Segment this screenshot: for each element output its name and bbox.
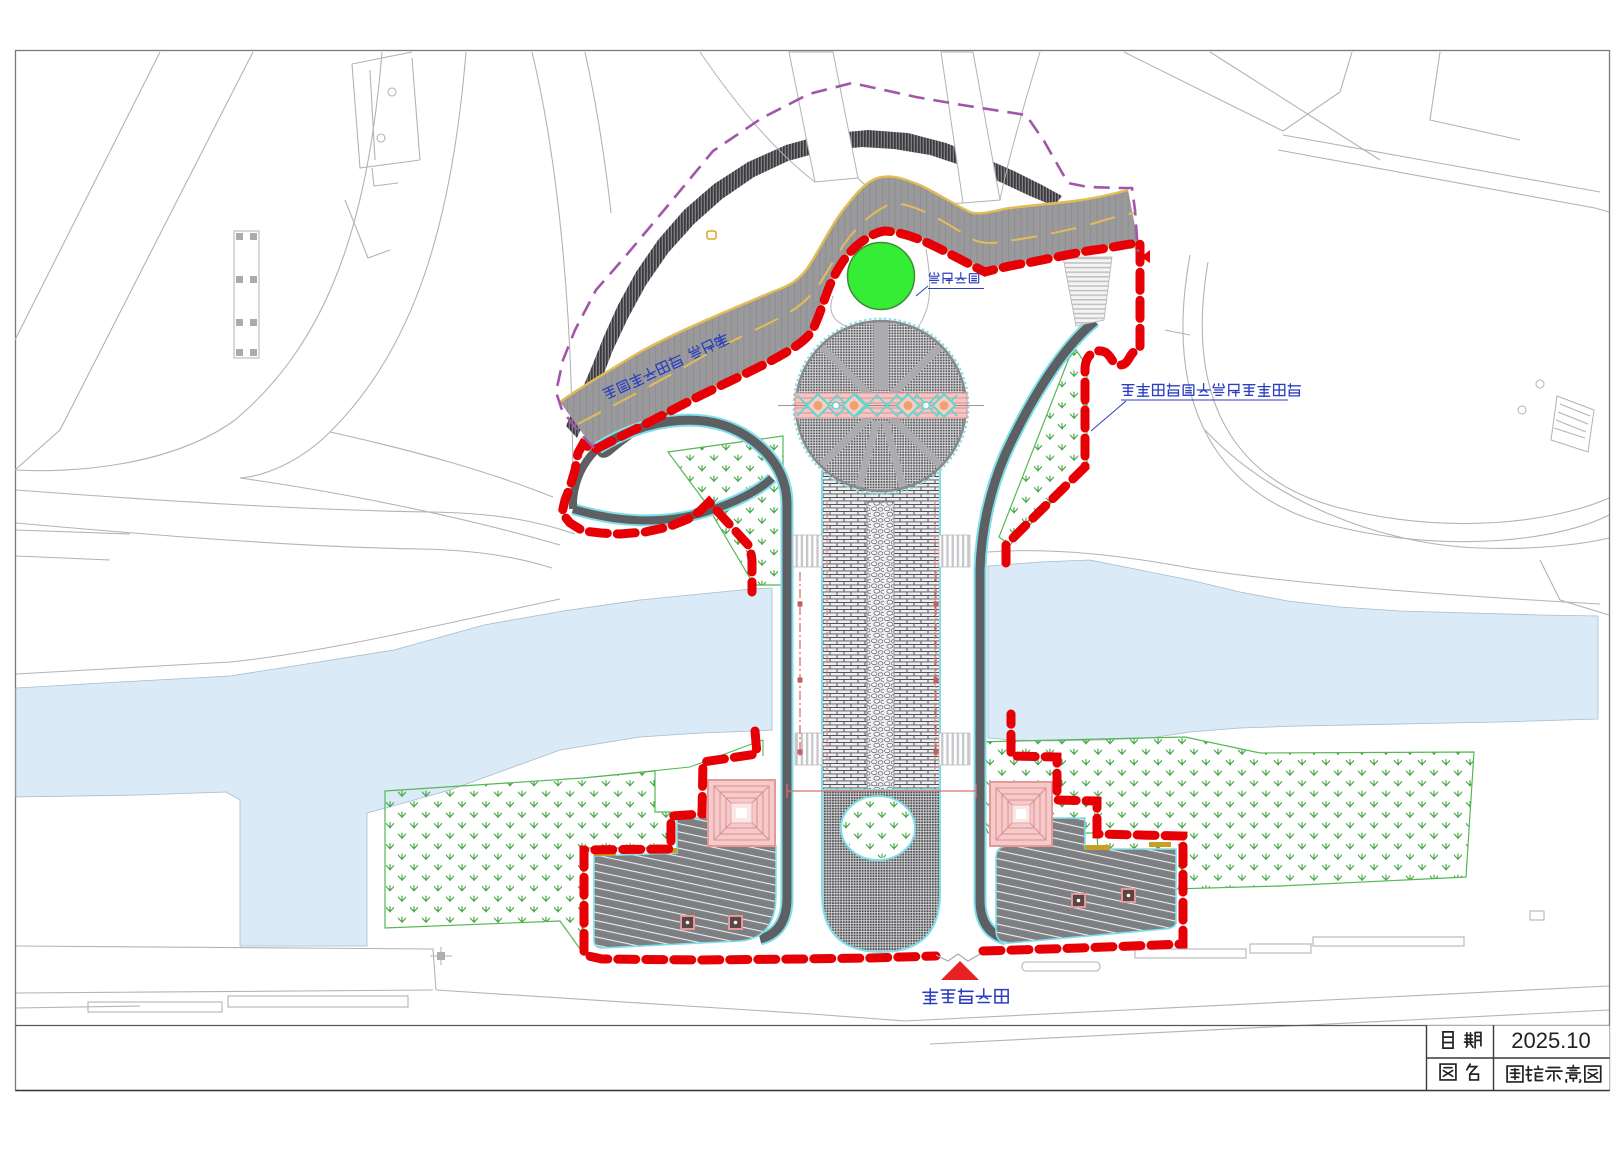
svg-text:2025.10: 2025.10 [1511,1028,1591,1053]
